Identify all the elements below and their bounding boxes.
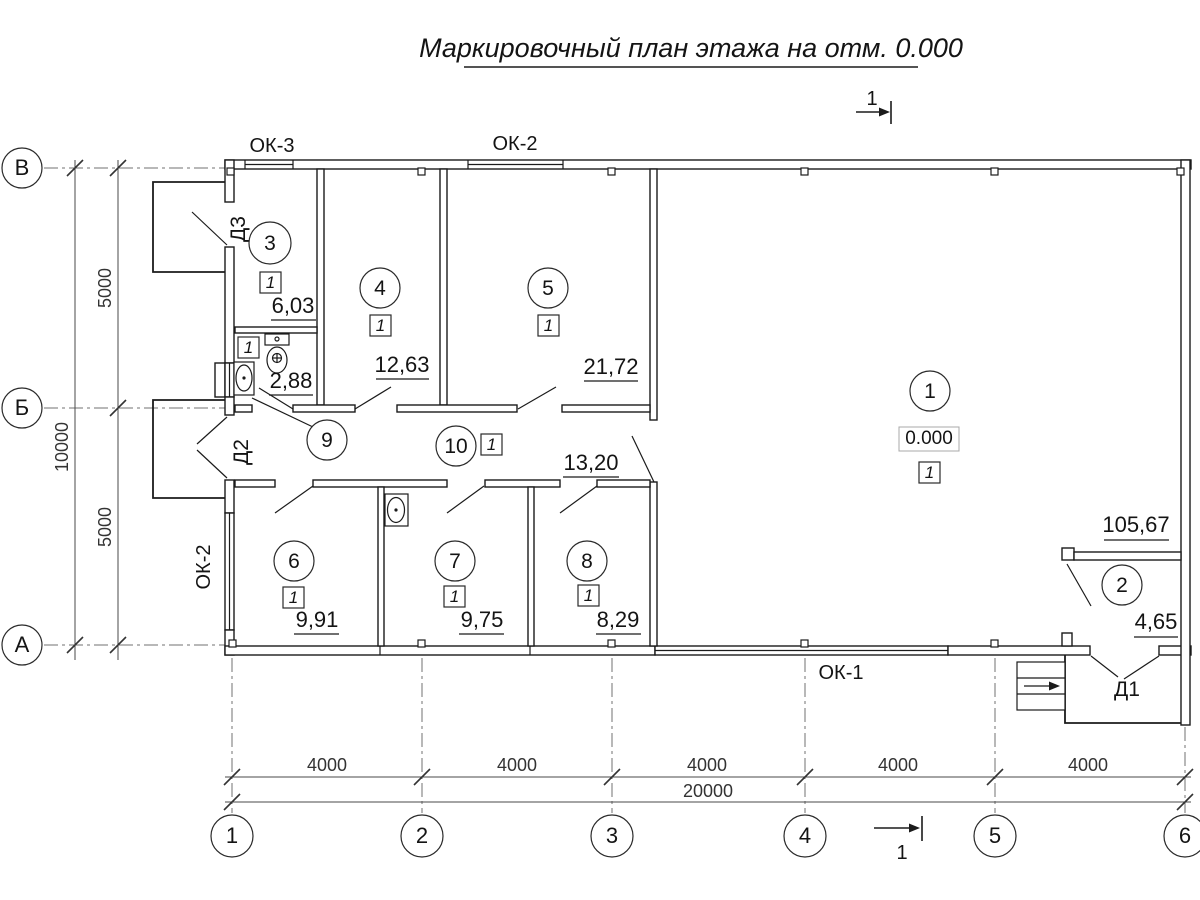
room-area: 9,91 (296, 607, 339, 632)
room-number: 10 (444, 435, 467, 458)
door-label-d1: Д1 (1114, 678, 1140, 701)
interior-walls (235, 169, 1181, 646)
axis-row-b: Б (15, 395, 29, 420)
sink-icon-room7 (385, 494, 408, 526)
room-area: 6,03 (272, 293, 315, 318)
section-mark-bottom: 1 (874, 816, 922, 864)
axis-col-4: 4 (799, 823, 811, 848)
room-3-annotation: 3 1 6,03 (249, 222, 316, 320)
floor-plan-canvas: Маркировочный план этажа на отм. 0.000 1… (0, 0, 1200, 900)
floor-type: 1 (266, 273, 275, 292)
room-10-annotation: 10 1 13,20 (436, 426, 619, 477)
drawing-title: Маркировочный план этажа на отм. 0.000 (419, 33, 963, 63)
floor-type: 1 (925, 463, 934, 482)
axis-col-6: 6 (1179, 823, 1191, 848)
room-area: 4,65 (1135, 609, 1178, 634)
window-label-ok3: ОК-3 (250, 135, 295, 157)
room-number: 6 (288, 550, 300, 573)
door-label-d2: Д2 (230, 439, 253, 465)
room-2-annotation: 2 4,65 (1102, 565, 1178, 637)
room-6-annotation: 6 1 9,91 (274, 541, 339, 634)
room-area: 9,75 (461, 607, 504, 632)
sink-icon-wc (234, 362, 254, 395)
room-8-annotation: 8 1 8,29 (567, 541, 641, 634)
axis-row-a: А (15, 632, 30, 657)
room-number: 7 (449, 550, 461, 573)
room-7-annotation: 7 1 9,75 (435, 541, 504, 634)
room-number: 4 (374, 277, 386, 300)
dim-left-total: 10000 (52, 422, 72, 472)
room-number: 9 (321, 429, 333, 452)
axis-col-5: 5 (989, 823, 1001, 848)
floor-type: 1 (584, 586, 593, 605)
section-mark-top: 1 (856, 88, 891, 124)
window-label-ok2-top: ОК-2 (493, 133, 538, 155)
dim-left-upper: 5000 (95, 268, 115, 308)
floor-type: 1 (289, 588, 298, 607)
axis-wall-markers (227, 168, 1184, 647)
room-number: 8 (581, 550, 593, 573)
room-number: 2 (1116, 574, 1128, 597)
room-1-annotation: 1 0.000 1 105,67 (899, 371, 1170, 540)
left-dimensions: 5000 5000 10000 (52, 160, 126, 660)
section-number: 1 (896, 842, 907, 864)
floor-type: 1 (487, 435, 496, 454)
axis-bubbles-left: В Б А (2, 148, 42, 665)
elevation-mark: 0.000 (905, 428, 953, 449)
bottom-dimensions: 4000 4000 4000 4000 4000 20000 (224, 755, 1193, 810)
room-area: 2,88 (270, 368, 313, 393)
room-area: 12,63 (374, 352, 429, 377)
floor-type: 1 (244, 338, 253, 357)
dim-span-4: 4000 (878, 755, 918, 775)
dim-span-1: 4000 (307, 755, 347, 775)
room-number: 5 (542, 277, 554, 300)
drawing-sheet: Маркировочный план этажа на отм. 0.000 1… (0, 0, 1200, 900)
axis-col-1: 1 (226, 823, 238, 848)
dim-bottom-total: 20000 (683, 781, 733, 801)
axis-col-2: 2 (416, 823, 428, 848)
axis-grid-lines (44, 168, 1185, 813)
room-area: 8,29 (597, 607, 640, 632)
floor-type: 1 (544, 316, 553, 335)
window-label-ok2-left: ОК-2 (193, 545, 215, 590)
room-area: 105,67 (1102, 512, 1169, 537)
room-number: 3 (264, 232, 276, 255)
axis-row-v: В (15, 155, 30, 180)
porch-top-left (153, 182, 225, 272)
window-label-ok1: ОК-1 (819, 662, 864, 684)
section-number: 1 (866, 88, 877, 110)
axis-bubbles-bottom: 1 2 3 4 5 6 (211, 815, 1200, 857)
dim-span-3: 4000 (687, 755, 727, 775)
floor-type: 1 (450, 587, 459, 606)
dim-left-lower: 5000 (95, 507, 115, 547)
dim-span-5: 4000 (1068, 755, 1108, 775)
porch-mid-left (153, 400, 225, 498)
room-4-annotation: 4 1 12,63 (360, 268, 430, 379)
exterior-walls (215, 160, 1191, 725)
room-area: 21,72 (583, 354, 638, 379)
room-5-annotation: 5 1 21,72 (528, 268, 639, 381)
room-number: 1 (924, 380, 936, 403)
door-label-d3: Д3 (227, 216, 250, 242)
entrance-steps (1017, 662, 1065, 710)
axis-col-3: 3 (606, 823, 618, 848)
room-area: 13,20 (563, 450, 618, 475)
floor-type: 1 (376, 316, 385, 335)
dim-span-2: 4000 (497, 755, 537, 775)
